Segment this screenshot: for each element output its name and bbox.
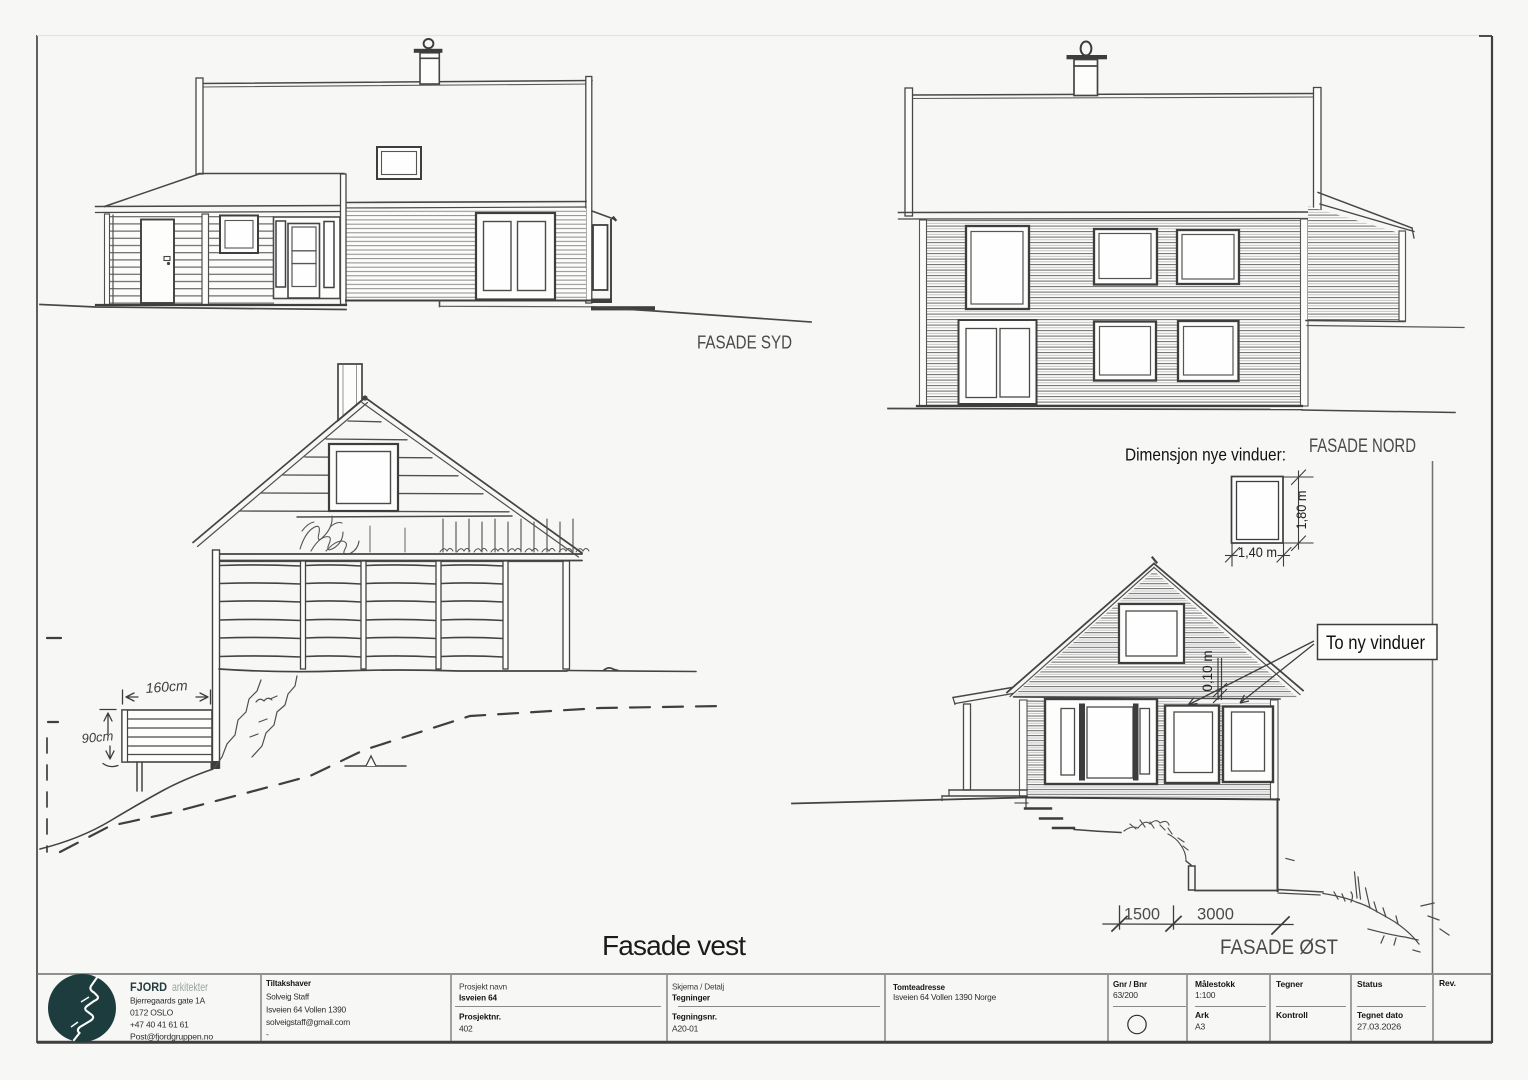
svg-text:160cm: 160cm: [145, 677, 188, 696]
svg-text:Tiltakshaver: Tiltakshaver: [266, 978, 312, 988]
svg-text:Gnr / Bnr: Gnr / Bnr: [1113, 979, 1148, 989]
svg-text:Tegnet dato: Tegnet dato: [1357, 1010, 1403, 1020]
svg-text:Kontroll: Kontroll: [1276, 1010, 1308, 1020]
svg-text:Bjerregaards gate 1A: Bjerregaards gate 1A: [130, 996, 206, 1006]
svg-text:FASADE SYD: FASADE SYD: [697, 333, 792, 353]
svg-text:Ark: Ark: [1195, 1010, 1209, 1020]
svg-text:A3: A3: [1195, 1022, 1205, 1032]
svg-text:FASADE NORD: FASADE NORD: [1309, 436, 1416, 457]
svg-text:solveigstaff@gmail.com: solveigstaff@gmail.com: [266, 1017, 350, 1027]
svg-text:+47 40 41 61 61: +47 40 41 61 61: [130, 1020, 189, 1030]
svg-text:Prosjekt navn: Prosjekt navn: [459, 981, 507, 991]
svg-text:Tegner: Tegner: [1276, 979, 1304, 989]
svg-text:1:100: 1:100: [1195, 990, 1216, 1000]
svg-text:27.03.2026: 27.03.2026: [1357, 1022, 1402, 1032]
svg-text:arkitekter: arkitekter: [172, 980, 208, 994]
svg-text:402: 402: [459, 1024, 473, 1034]
svg-text:0,10 m: 0,10 m: [1200, 650, 1215, 691]
svg-text:To ny vinduer: To ny vinduer: [1326, 633, 1426, 654]
svg-text:Tegninger: Tegninger: [672, 993, 711, 1003]
svg-text:0172 OSLO: 0172 OSLO: [130, 1008, 174, 1018]
svg-text:1500: 1500: [1124, 905, 1160, 924]
svg-text:Isveien 64: Isveien 64: [459, 993, 497, 1003]
svg-text:Tomteadresse: Tomteadresse: [893, 982, 945, 992]
svg-text:1,80 m: 1,80 m: [1293, 491, 1309, 530]
svg-text:Rev.: Rev.: [1439, 978, 1456, 988]
svg-text:-: -: [266, 1029, 269, 1039]
svg-text:Fasade vest: Fasade vest: [602, 930, 746, 961]
svg-text:Prosjektnr.: Prosjektnr.: [459, 1012, 501, 1022]
svg-text:Målestokk: Målestokk: [1195, 979, 1235, 989]
svg-text:FJORD: FJORD: [130, 980, 167, 994]
svg-text:90cm: 90cm: [81, 728, 114, 746]
svg-text:Tegningsnr.: Tegningsnr.: [672, 1012, 717, 1022]
svg-text:Status: Status: [1357, 979, 1383, 989]
svg-text:Isveien 64 Vollen 1390: Isveien 64 Vollen 1390: [266, 1005, 346, 1015]
svg-text:Skjema / Detalj: Skjema / Detalj: [672, 981, 724, 991]
svg-text:A20-01: A20-01: [672, 1024, 699, 1034]
svg-text:FASADE ØST: FASADE ØST: [1220, 936, 1338, 959]
svg-text:Post@fjordgruppen.no: Post@fjordgruppen.no: [130, 1032, 213, 1042]
svg-text:Dimensjon nye vinduer:: Dimensjon nye vinduer:: [1125, 445, 1286, 465]
svg-text:Solveig Staff: Solveig Staff: [266, 992, 310, 1002]
svg-text:Isveien 64 Vollen 1390 Norge: Isveien 64 Vollen 1390 Norge: [893, 992, 996, 1002]
svg-text:1,40 m: 1,40 m: [1238, 544, 1277, 560]
svg-text:63/200: 63/200: [1113, 990, 1138, 1000]
svg-text:3000: 3000: [1197, 905, 1234, 924]
